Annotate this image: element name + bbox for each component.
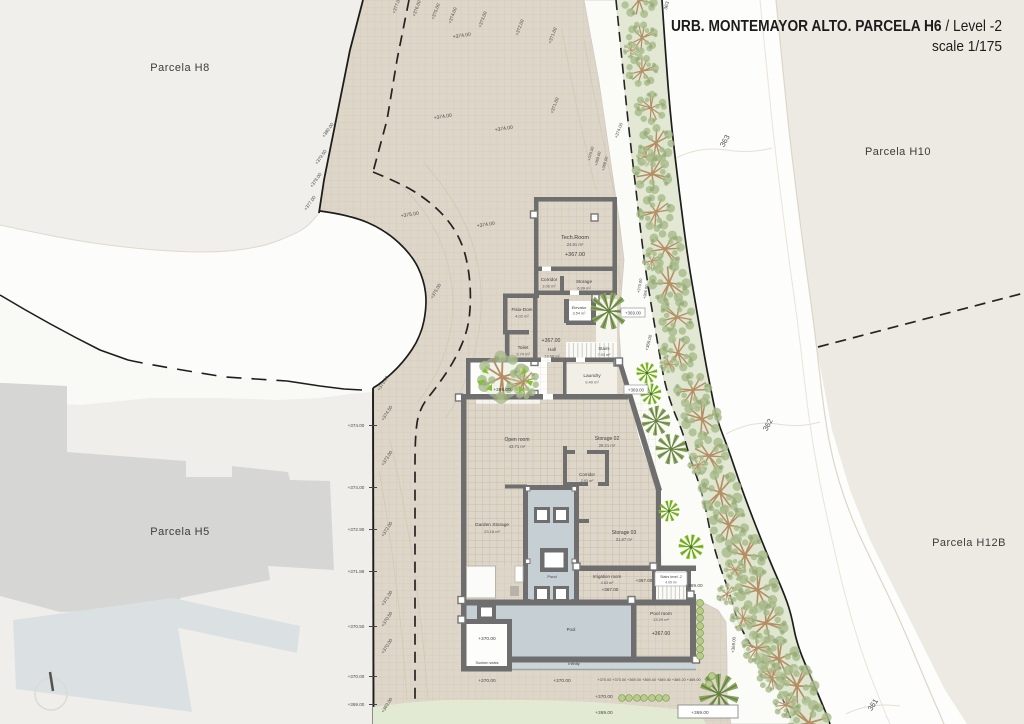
svg-text:+367.00: +367.00 [565,252,585,258]
svg-text:Sunken seats: Sunken seats [475,661,498,665]
svg-text:Parcela H12B: Parcela H12B [932,537,1006,549]
svg-text:13.29 m²: 13.29 m² [653,617,669,622]
svg-text:+367.00: +367.00 [602,587,619,592]
svg-text:Garden Storage: Garden Storage [475,522,509,528]
svg-text:+372.90: +372.90 [348,527,365,532]
svg-text:4.83 m²: 4.83 m² [601,581,615,585]
svg-text:+370.50: +370.50 [348,624,365,629]
svg-text:+369.00: +369.00 [493,387,511,393]
svg-text:+370.00: +370.00 [348,674,365,679]
svg-text:+370.00: +370.00 [478,636,496,642]
svg-text:31.87 m²: 31.87 m² [616,537,633,542]
svg-text:23.18 m²: 23.18 m² [484,529,500,534]
svg-text:+369.00: +369.00 [625,311,642,316]
svg-text:3.54 m²: 3.54 m² [573,312,587,316]
svg-text:3.06 m²: 3.06 m² [542,284,556,289]
svg-text:Pond: Pond [547,574,556,579]
svg-text:Stairs: Stairs [598,346,610,351]
svg-text:Storage 02: Storage 02 [595,436,620,442]
svg-text:+369.00: +369.00 [628,388,645,393]
svg-text:Parcela H10: Parcela H10 [865,146,931,158]
svg-text:+370.00 +370.00 +369.00 +369.4: +370.00 +370.00 +369.00 +369.40 +369.40 … [597,678,700,682]
svg-text:2.93 m²: 2.93 m² [581,479,595,483]
svg-text:+367.00: +367.00 [636,578,653,583]
svg-text:Storage: Storage [576,279,593,284]
svg-text:+369.00: +369.00 [691,710,709,716]
svg-text:Parcela H5: Parcela H5 [150,526,209,538]
svg-text:4.09 m²: 4.09 m² [665,581,677,585]
svg-text:Storage 03: Storage 03 [612,530,637,536]
svg-text:43.71 m²: 43.71 m² [509,444,526,449]
svg-text:+367.00: +367.00 [652,631,670,637]
svg-text:Laundry: Laundry [583,373,601,379]
svg-text:+369.00: +369.00 [595,710,613,716]
svg-text:Corridor: Corridor [579,472,595,477]
svg-text:Pool: Pool [567,627,576,632]
svg-text:24.81 m²: 24.81 m² [567,242,584,247]
svg-text:Corridor: Corridor [541,277,558,282]
svg-text:+370.00: +370.00 [478,678,496,684]
svg-text:+374.00: +374.00 [348,423,365,428]
svg-text:Fisio-Dom: Fisio-Dom [512,307,533,312]
svg-text:7.93 m²: 7.93 m² [598,353,612,357]
svg-text:+370.00: +370.00 [553,678,571,684]
svg-text:URB. MONTEMAYOR ALTO. PARCELA: URB. MONTEMAYOR ALTO. PARCELA H6 / Level… [671,18,1002,35]
svg-text:6.99 m²: 6.99 m² [577,286,591,291]
svg-text:Stairs level -2: Stairs level -2 [660,575,682,579]
svg-text:+371.86: +371.86 [348,569,365,574]
svg-text:Infinity: Infinity [568,661,580,666]
svg-text:Open room: Open room [504,437,529,443]
svg-text:Toilet: Toilet [518,345,529,350]
svg-text:+370.00: +370.00 [595,694,613,700]
svg-text:+367.00: +367.00 [542,338,561,344]
svg-text:Hall: Hall [548,347,556,352]
svg-text:28.21 m²: 28.21 m² [599,443,616,448]
svg-text:Irrigation room: Irrigation room [593,574,622,579]
svg-text:+369.00: +369.00 [685,583,703,589]
svg-text:4.02 m²: 4.02 m² [515,314,529,319]
svg-text:scale 1/175: scale 1/175 [932,38,1002,55]
svg-text:9.40 m²: 9.40 m² [585,380,599,385]
svg-text:Tech.Room: Tech.Room [561,235,589,241]
svg-text:+369.00: +369.00 [348,702,365,707]
svg-text:13.68 m²: 13.68 m² [544,354,560,359]
svg-text:3.74 m²: 3.74 m² [516,352,530,357]
svg-text:Parcela H8: Parcela H8 [150,62,209,74]
svg-text:Elevator: Elevator [572,305,587,310]
svg-text:+374.00: +374.00 [348,485,365,490]
